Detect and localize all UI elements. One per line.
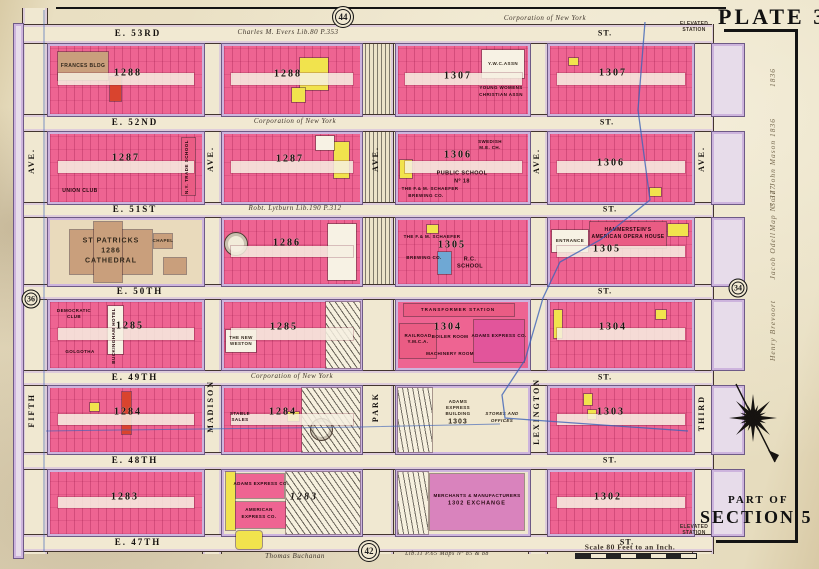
block-number-1288e: 1288 [274, 69, 302, 80]
street-label-e47: E. 47TH [115, 537, 162, 547]
adams-express-building-number: 1303 [448, 419, 468, 428]
park-label: PARK [371, 392, 380, 422]
block-number-1284w: 1284 [114, 407, 142, 418]
block-number-1287e: 1287 [276, 154, 304, 165]
dome-structure [224, 232, 248, 256]
block-number-1306e: 1306 [597, 158, 625, 169]
railroad-track-fan [326, 302, 360, 368]
american-express-label-1: AMERICAN [245, 507, 272, 513]
merchants-exchange-label-1: MERCHANTS & MANUFACTURERS [433, 493, 520, 499]
hammerstein-label-2: AMERICAN OPERA HOUSE [591, 234, 664, 240]
block-1302-west: MERCHANTS & MANUFACTURERS 1302 EXCHANGE [396, 470, 530, 536]
yellow-lots [656, 310, 666, 319]
third-ave-stub-r2 [712, 132, 744, 204]
yellow-lots [668, 224, 688, 236]
block-1303-east [548, 386, 694, 454]
adams-express-label: ADAMS EXPRESS CO. [471, 333, 526, 339]
note-thomas-buchanan: Thomas Buchanan [265, 552, 325, 560]
elevated-station-bottom: ELEVATED STATION [674, 524, 714, 536]
trade-school-label: N.Y. TRADE SCHOOL [184, 140, 189, 194]
note-corporation-top: Corporation of New York [504, 14, 586, 22]
handwriting-1836: 1836 [768, 68, 777, 87]
street-st-e51: ST. [603, 205, 617, 214]
cathedral-label-3: CATHEDRAL [85, 258, 137, 267]
yellow-building [334, 142, 349, 178]
white-corner-building [316, 136, 334, 150]
cathedral-label-2: 1286 [101, 248, 121, 257]
plate-ref-badge-44: 44 [332, 6, 354, 28]
chapel-label: CHAPEL [153, 238, 174, 244]
note-e51: Robt. Lytburn Lib.190 P.312 [249, 204, 342, 212]
block-1288-west: FRANCES BLDG [48, 44, 204, 116]
madison-label: MADISON [206, 380, 215, 433]
young-womens-label-2: CHRISTIAN ASSN [479, 92, 523, 98]
fifth-label: FIFTH [27, 393, 36, 427]
block-1285-east: THE NEW WESTON [222, 300, 362, 370]
yellow-lot [650, 188, 661, 196]
note-e53: Charles M. Evers Lib.80 P.353 [238, 28, 339, 36]
swedish-church-label-1: SWEDISH [478, 139, 502, 145]
block-1305-west: THE F.& M. SCHAEFER BREWING CO. R.C. SCH… [396, 218, 530, 286]
block-number-1288w: 1288 [114, 68, 142, 79]
swedish-church-label-2: M.E. CH. [479, 145, 500, 151]
third-ave-stub-r5 [712, 386, 744, 454]
young-womens-label-1: YOUNG WOMENS [479, 85, 522, 91]
note-e52: Corporation of New York [254, 117, 336, 125]
white-lots [328, 224, 356, 280]
third-label: THIRD [697, 395, 706, 431]
block-number-1307e: 1307 [599, 68, 627, 79]
block-1287-west: N.Y. TRADE SCHOOL UNION CLUB [48, 132, 204, 204]
hammerstein-label-1: HAMMERSTEIN'S [605, 227, 652, 233]
park-avenue-south [360, 300, 394, 554]
lexington-ave-label: AVE. [532, 148, 541, 174]
block-st-patricks: CHAPEL ST PATRICKS 1286 CATHEDRAL [48, 218, 204, 286]
yellow-lot-a [584, 394, 592, 405]
adams-express-building-label-3: BUILDING [446, 411, 471, 417]
machinery-room-label: MACHINERY ROOM [426, 351, 474, 357]
street-label-e48: E. 48TH [112, 455, 159, 465]
scale-bar [575, 553, 697, 559]
block-1287-east [222, 132, 362, 204]
block-1284-west [48, 386, 204, 454]
adams-express-building-label-1: ADAMS [449, 399, 468, 405]
third-ave-label: AVE. [697, 146, 706, 172]
lexington-label: LEXINGTON [532, 378, 541, 445]
block-number-1283w: 1283 [111, 492, 139, 503]
scale-label: Scale 80 Feet to an Inch. [585, 543, 675, 552]
street-label-e52: E. 52ND [112, 117, 159, 127]
atlas-sheet: E. 53RD E. 52ND E. 51ST E. 50TH E. 49TH … [0, 0, 819, 569]
railroad-ymca-label-2: Y.M.C.A. [408, 339, 429, 345]
block-1283-west [48, 470, 204, 536]
section-part-of: PART OF [728, 494, 789, 506]
street-st-e52: ST. [600, 118, 614, 127]
block-1304-west: TRANSFORMER STATION RAILROAD Y.M.C.A. AD… [396, 300, 530, 370]
yellow-frame-buildings [300, 58, 328, 90]
frame-bottom-right-thick [716, 540, 798, 543]
new-weston-label-2: WESTON [230, 341, 252, 347]
street-label-e49: E. 49TH [112, 372, 159, 382]
yellow-lot [90, 403, 99, 411]
block-1288-east [222, 44, 362, 116]
block-number-1283e: 1283 [290, 492, 318, 503]
railroad-tracks [398, 388, 432, 452]
plate-title: PLATE 35 [718, 4, 819, 30]
block-1283-east: ADAMS EXPRESS CO. AMERICAN EXPRESS CO. [222, 470, 362, 536]
note-e49: Corporation of New York [251, 372, 333, 380]
block-number-1305e: 1305 [593, 244, 621, 255]
stable-sales-label-2: SALES [231, 417, 248, 423]
plate-ref-badge-42: 42 [358, 540, 380, 562]
yellow-vertical-lot [554, 310, 562, 338]
elevated-station-top: ELEVATED STATION [674, 21, 714, 33]
block-1305-east: ENTRANCE HAMMERSTEIN'S AMERICAN OPERA HO… [548, 218, 694, 286]
entrance-label: ENTRANCE [556, 238, 584, 244]
handwriting-map: Map Nº 377 [768, 185, 777, 231]
plate-ref-badge-34: 34 [729, 279, 748, 298]
yellow-frame-building-small [292, 88, 305, 102]
fifth-avenue [22, 8, 48, 554]
street-label-e51: E. 51ST [113, 204, 158, 214]
street-st-e50: ST. [598, 287, 612, 296]
schaefer-office-label-2: BREWING CO. [408, 193, 443, 199]
yellow-street-area [236, 531, 262, 549]
yellow-lot-b [588, 410, 596, 419]
frances-building-label: FRANCES BLDG [61, 63, 106, 69]
handwriting-henry-brevoort: Henry Brevoort [768, 300, 777, 361]
street-label-e53: E. 53RD [115, 28, 162, 38]
third-ave-stub-r1 [712, 44, 744, 116]
golgotha-label: GOLGOTHA [65, 349, 94, 355]
madison-ave-label: AVE. [206, 146, 215, 172]
adams-express-building-label-2: EXPRESS [446, 405, 470, 411]
street-st-e48: ST. [603, 456, 617, 465]
ywca-building-label: Y.W.C.ASSN [488, 61, 518, 67]
block-number-1285e: 1285 [270, 322, 298, 333]
block-number-1307w: 1307 [444, 71, 472, 82]
railroad-track-fan [286, 472, 360, 534]
boiler-room-label: BOILER ROOM [432, 334, 469, 340]
block-number-1305w: 1305 [438, 240, 466, 251]
block-1306-west: SWEDISH M.E. CH. PUBLIC SCHOOL Nº 18 THE… [396, 132, 530, 204]
block-number-1286e: 1286 [273, 238, 301, 249]
adams-express-building [474, 320, 524, 362]
democratic-club-label-1: DEMOCRATIC [57, 308, 91, 314]
block-1286-east [222, 218, 362, 286]
section-number: SECTION 5 [700, 507, 813, 528]
american-express-label-2: EXPRESS CO. [242, 514, 277, 520]
new-weston-label-1: THE NEW [229, 335, 253, 341]
block-number-1302e: 1302 [594, 492, 622, 503]
adams-express-co-label: ADAMS EXPRESS CO. [233, 481, 288, 487]
public-school-label-1: PUBLIC SCHOOL [437, 171, 488, 178]
schaefer-office-label-1: THE F.& M. SCHAEFER [402, 186, 459, 192]
plate-ref-badge-36: 36 [22, 290, 41, 309]
block-1285-west: BUCKINGHAM HOTEL DEMOCRATIC CLUB GOLGOTH… [48, 300, 204, 370]
block-number-1284e: 1284 [269, 407, 297, 418]
union-club-label: UNION CLUB [62, 188, 97, 194]
merchants-exchange-label-2: 1302 EXCHANGE [448, 501, 506, 508]
block-number-1285w: 1285 [116, 321, 144, 332]
compass-needle-arrowhead [768, 450, 779, 462]
street-st-e53: ST. [598, 29, 612, 38]
schaefer-brewery-label-2: BREWING CO. [406, 255, 441, 261]
fifth-ave-label: AVE. [27, 148, 36, 174]
block-number-1304e: 1304 [599, 322, 627, 333]
third-ave-stub-r3 [712, 218, 744, 286]
yellow-lot [569, 58, 578, 65]
buckingham-hotel-label: BUCKINGHAM HOTEL [111, 308, 116, 364]
handwriting-jacob-odell: Jacob Odell [768, 232, 777, 279]
stable-sales-label-1: STABLE [230, 411, 250, 417]
public-school-label-2: Nº 18 [454, 179, 470, 186]
yellow-lot [427, 225, 438, 233]
turntable [310, 418, 333, 441]
block-1304-east [548, 300, 694, 370]
fifth-ave-west-sidewalk [14, 24, 23, 558]
railroad-tracks [398, 472, 428, 534]
block-number-1303e: 1303 [597, 407, 625, 418]
block-number-1287w: 1287 [112, 153, 140, 164]
block-number-1304w: 1304 [434, 322, 462, 333]
transformer-station-label: TRANSFORMER STATION [421, 307, 495, 313]
rc-school-label-2: SCHOOL [457, 264, 483, 271]
street-label-e50: E. 50TH [117, 286, 164, 296]
frame-right-thick [795, 29, 798, 543]
third-ave-stub-r4 [712, 300, 744, 370]
block-1303-west: ADAMS EXPRESS BUILDING 1303 STORES AND O… [396, 386, 530, 454]
stores-offices-label-1: STORES AND [485, 411, 518, 417]
park-ave-label: AVE. [371, 146, 380, 172]
block-number-1306w: 1306 [444, 150, 472, 161]
rc-school-label-1: R.C. [464, 257, 477, 264]
railroad-ymca-label-1: RAILROAD [405, 333, 432, 339]
note-lib-maps: Lib.11 P.65 Maps Nº 85 & 88 [405, 551, 489, 557]
rectory-building [164, 258, 186, 274]
railroad-track-fan [302, 388, 360, 452]
street-st-e49: ST. [598, 373, 612, 382]
block-1302-east [548, 470, 694, 536]
cathedral-label-1: ST PATRICKS [83, 238, 140, 247]
red-building [110, 77, 121, 101]
yellow-lot [400, 160, 412, 178]
block-1284-east: STABLE SALES [222, 386, 362, 454]
democratic-club-label-2: CLUB [67, 314, 81, 320]
stores-offices-label-2: OFFICES [491, 418, 513, 424]
block-1307-east [548, 44, 694, 116]
frame-top-thin [56, 7, 726, 9]
